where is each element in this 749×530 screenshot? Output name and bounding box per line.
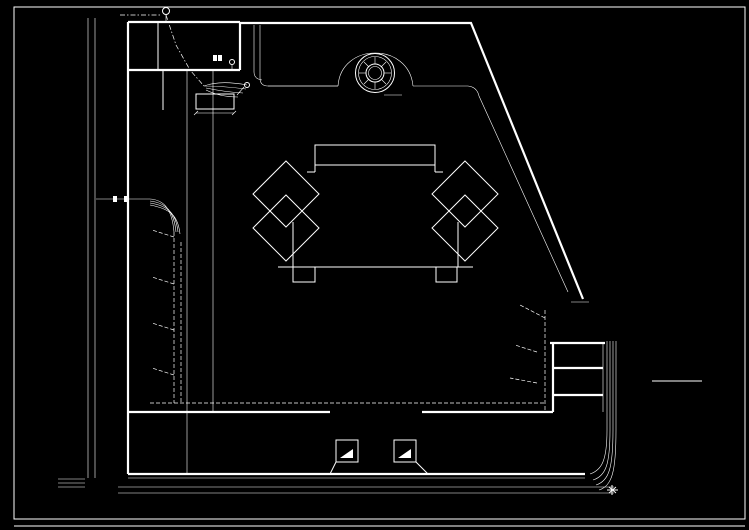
- site-plan-drawing: [0, 0, 749, 530]
